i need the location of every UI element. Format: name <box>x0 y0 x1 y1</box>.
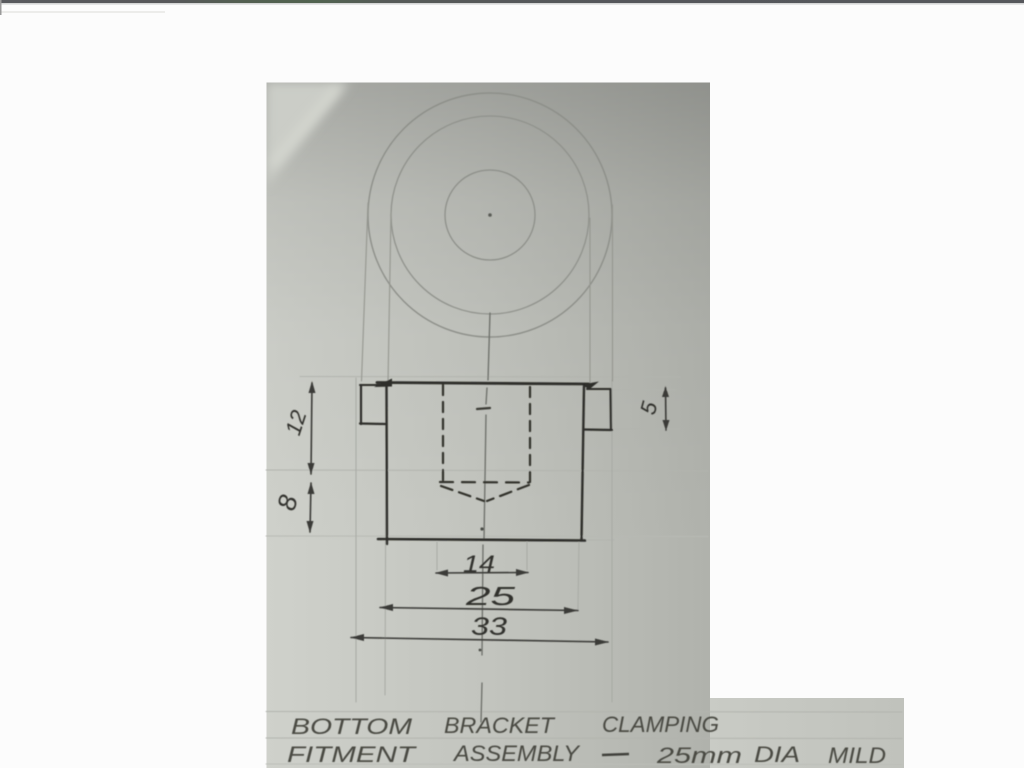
svg-text:BOTTOM: BOTTOM <box>291 714 413 739</box>
svg-text:FITMENT: FITMENT <box>287 742 417 767</box>
svg-text:CLAMPING: CLAMPING <box>602 712 719 737</box>
svg-text:ASSEMBLY: ASSEMBLY <box>452 741 581 766</box>
svg-text:MILD: MILD <box>828 743 886 768</box>
svg-text:25mm: 25mm <box>656 743 742 768</box>
svg-text:DIA: DIA <box>754 742 800 767</box>
svg-text:33: 33 <box>471 613 507 641</box>
svg-text:14: 14 <box>463 551 495 578</box>
svg-text:BRACKET: BRACKET <box>444 713 556 738</box>
svg-text:25: 25 <box>464 581 516 611</box>
